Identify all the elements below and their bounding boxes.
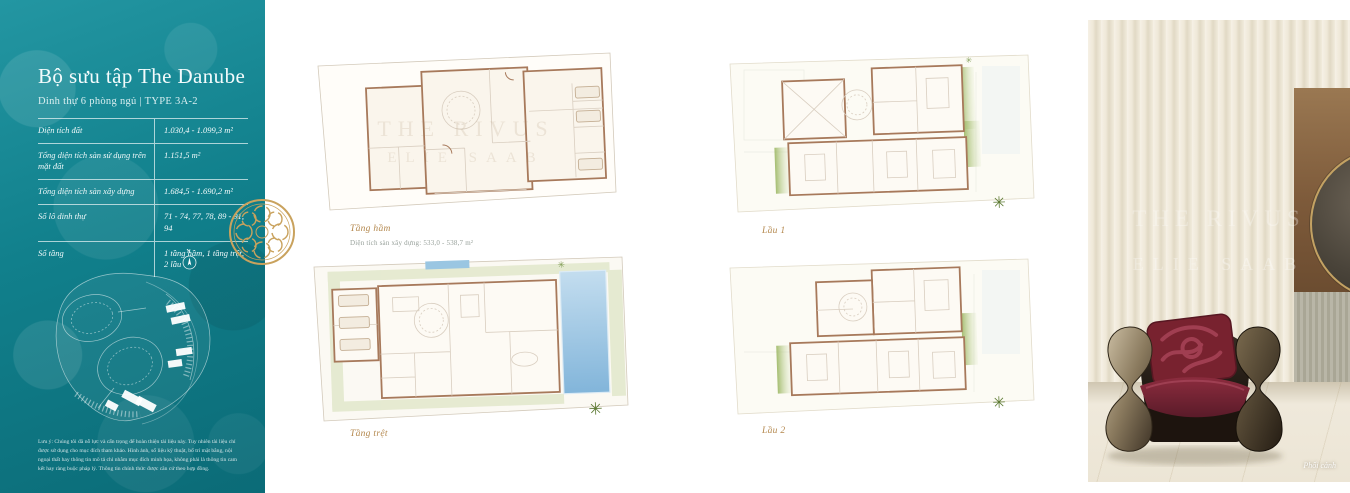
interior-photo: THE RIVUS ELIE SAAB bbox=[1088, 20, 1350, 482]
floor-plan-basement: THE RIVUS ELIE SAAB bbox=[312, 48, 620, 218]
floor-plan-level2: ✳ bbox=[726, 256, 1038, 420]
table-row: Tổng diện tích sàn sử dụng trên mặt đất … bbox=[38, 143, 248, 179]
spec-value: 1.151,5 m² bbox=[154, 144, 248, 179]
floor-plan-level1: ✳ ✳ bbox=[726, 52, 1038, 218]
armchair-image bbox=[1090, 290, 1300, 470]
svg-text:✳: ✳ bbox=[965, 56, 972, 65]
level1-plan-drawing: ✳ ✳ bbox=[726, 52, 1038, 218]
masterplan-map bbox=[18, 268, 250, 430]
spec-label: Tổng diện tích sàn xây dựng bbox=[38, 180, 154, 204]
spec-label: Diện tích đất bbox=[38, 119, 154, 143]
svg-text:✳: ✳ bbox=[557, 260, 565, 270]
spec-label: Số lô dinh thự bbox=[38, 205, 154, 241]
spec-table: Diện tích đất 1.030,4 - 1.099,3 m² Tổng … bbox=[38, 118, 248, 277]
disclaimer-text: Lưu ý: Chúng tôi đã nỗ lực và cẩn trọng … bbox=[38, 438, 240, 474]
svg-text:✳: ✳ bbox=[588, 399, 603, 418]
spec-label: Tổng diện tích sàn sử dụng trên mặt đất bbox=[38, 144, 154, 179]
plan-caption-level1: Lầu 1 bbox=[762, 226, 785, 236]
page-title: Bộ sưu tập The Danube bbox=[38, 64, 245, 89]
plan-caption-basement: Tầng hầm bbox=[350, 224, 391, 234]
plan-caption-ground: Tầng trệt bbox=[350, 429, 388, 439]
page-subtitle: Dinh thự 6 phòng ngủ | TYPE 3A-2 bbox=[38, 96, 198, 107]
brand-medallion-icon bbox=[227, 197, 297, 267]
plan-subcaption-basement: Diện tích sàn xây dựng: 533,0 - 538,7 m² bbox=[350, 239, 473, 247]
svg-text:✳: ✳ bbox=[992, 195, 1006, 212]
brochure-page: Bộ sưu tập The Danube Dinh thự 6 phòng n… bbox=[0, 0, 1350, 493]
table-row: Tổng diện tích sàn xây dựng 1.684,5 - 1.… bbox=[38, 179, 248, 204]
table-row: Diện tích đất 1.030,4 - 1.099,3 m² bbox=[38, 118, 248, 143]
basement-plan-drawing bbox=[312, 48, 620, 218]
ground-plan-drawing: ✳ ✳ bbox=[310, 255, 632, 425]
floor-plan-ground: ✳ ✳ bbox=[310, 255, 632, 425]
table-row: Số lô dinh thự 71 - 74, 77, 78, 89 - 91,… bbox=[38, 204, 248, 241]
spec-value: 1.030,4 - 1.099,3 m² bbox=[154, 119, 248, 143]
svg-text:✳: ✳ bbox=[992, 395, 1006, 412]
photo-caption: Phối cảnh bbox=[1303, 461, 1336, 470]
info-panel: Bộ sưu tập The Danube Dinh thự 6 phòng n… bbox=[0, 0, 265, 493]
plan-caption-level2: Lầu 2 bbox=[762, 426, 785, 436]
level2-plan-drawing: ✳ bbox=[726, 256, 1038, 420]
